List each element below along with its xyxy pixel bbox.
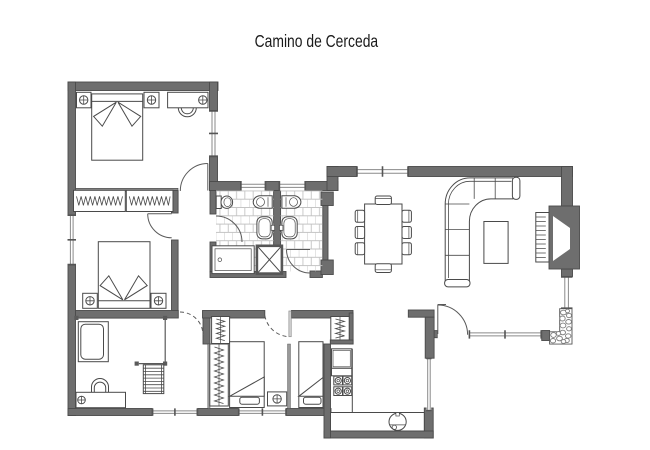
svg-text:Camino de Cerceda: Camino de Cerceda xyxy=(255,31,379,51)
